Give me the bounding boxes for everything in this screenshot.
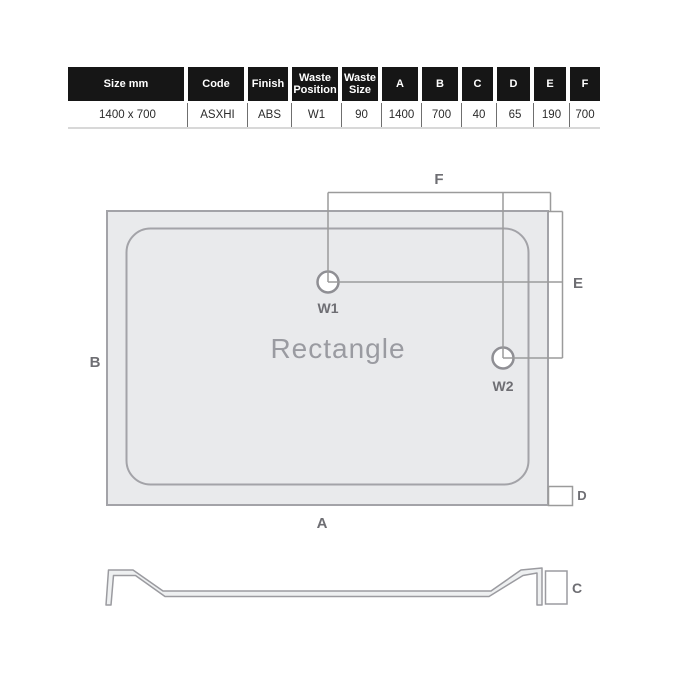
spec-table: Size mmCodeFinishWaste PositionWaste Siz… bbox=[68, 67, 600, 129]
spec-value-cell-3: W1 bbox=[292, 103, 342, 127]
spec-value-cell-2: ABS bbox=[248, 103, 292, 127]
dim-f-label: F bbox=[434, 171, 443, 188]
spec-header-cell-1: Code bbox=[188, 67, 244, 101]
page: F E B A D W1 W2 Rectangle C Size mmCodeF… bbox=[0, 0, 675, 675]
dim-b-label: B bbox=[90, 354, 101, 371]
spec-header-cell-4: Waste Size bbox=[342, 67, 378, 101]
dim-a-label: A bbox=[317, 515, 328, 532]
tray-profile-outline bbox=[106, 568, 542, 605]
spec-header-cell-10: F bbox=[570, 67, 600, 101]
spec-header-cell-2: Finish bbox=[248, 67, 288, 101]
spec-value-cell-10: 700 bbox=[570, 103, 600, 127]
spec-value-cell-4: 90 bbox=[342, 103, 382, 127]
spec-header-cell-6: B bbox=[422, 67, 458, 101]
spec-header-cell-8: D bbox=[497, 67, 530, 101]
spec-table-header-row: Size mmCodeFinishWaste PositionWaste Siz… bbox=[68, 67, 600, 101]
spec-value-cell-1: ASXHI bbox=[188, 103, 248, 127]
spec-header-cell-3: Waste Position bbox=[292, 67, 338, 101]
spec-value-cell-9: 190 bbox=[534, 103, 570, 127]
spec-table-value-row: 1400 x 700ASXHIABSW19014007004065190700 bbox=[68, 103, 600, 129]
spec-header-cell-0: Size mm bbox=[68, 67, 184, 101]
waste-w2-label: W2 bbox=[493, 378, 514, 394]
dim-e-label: E bbox=[573, 275, 583, 292]
dim-d-box bbox=[549, 487, 573, 506]
plan-view: F E B A D W1 W2 Rectangle bbox=[90, 171, 587, 532]
spec-value-cell-8: 65 bbox=[497, 103, 534, 127]
spec-header-cell-5: A bbox=[382, 67, 418, 101]
dim-d-label: D bbox=[577, 488, 586, 503]
spec-header-cell-9: E bbox=[534, 67, 566, 101]
shape-name-label: Rectangle bbox=[270, 333, 405, 364]
profile-view: C bbox=[106, 568, 582, 605]
dim-c-label: C bbox=[572, 580, 582, 596]
spec-header-cell-7: C bbox=[462, 67, 493, 101]
spec-value-cell-7: 40 bbox=[462, 103, 497, 127]
spec-value-cell-5: 1400 bbox=[382, 103, 422, 127]
spec-value-cell-6: 700 bbox=[422, 103, 462, 127]
waste-w1-label: W1 bbox=[318, 300, 339, 316]
dim-c-box bbox=[546, 571, 568, 604]
spec-value-cell-0: 1400 x 700 bbox=[68, 103, 188, 127]
